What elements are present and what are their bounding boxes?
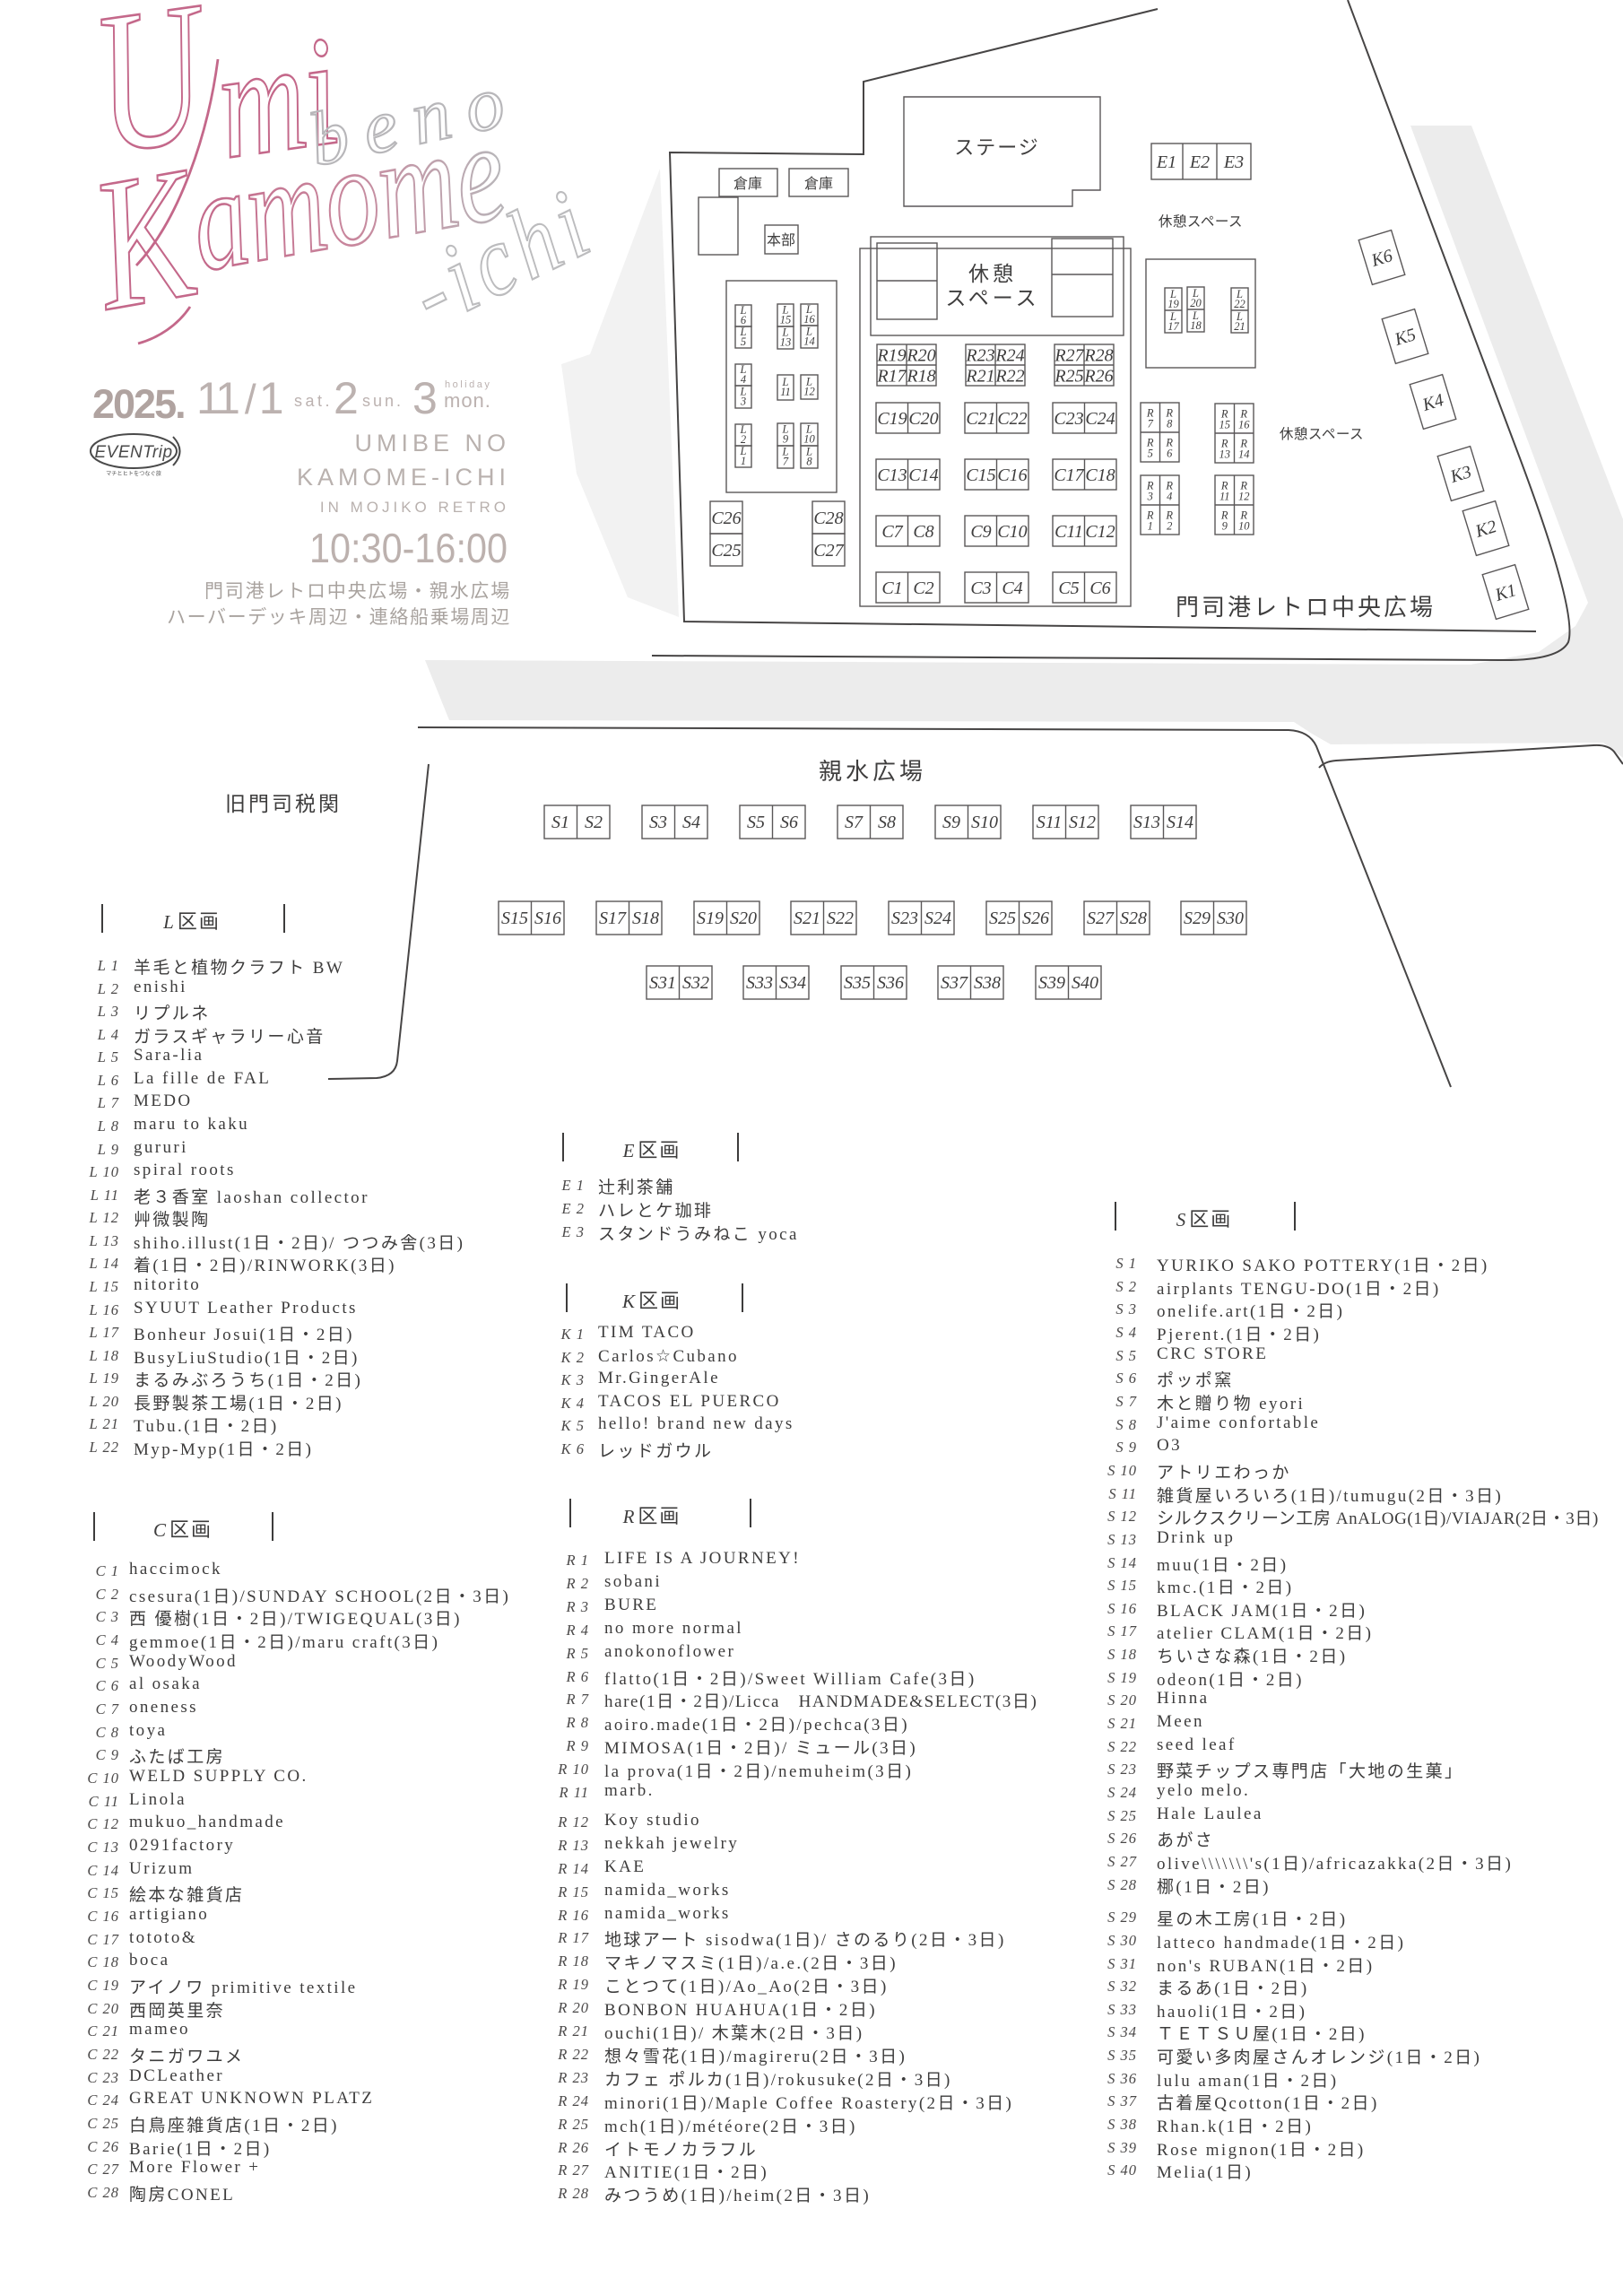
svg-text:14: 14 bbox=[1238, 448, 1250, 461]
svg-text:C28: C28 bbox=[813, 509, 843, 528]
svg-text:C18: C18 bbox=[1085, 465, 1115, 485]
svg-text:R19: R19 bbox=[876, 346, 906, 366]
svg-text:C9: C9 bbox=[970, 522, 991, 542]
svg-text:S7: S7 bbox=[845, 813, 864, 832]
svg-text:10: 10 bbox=[1238, 520, 1250, 533]
svg-text:R25: R25 bbox=[1054, 367, 1083, 387]
svg-text:C15: C15 bbox=[966, 465, 995, 485]
svg-text:8: 8 bbox=[806, 456, 812, 468]
svg-text:C13: C13 bbox=[877, 465, 907, 485]
svg-text:7: 7 bbox=[1148, 418, 1154, 430]
svg-text:K3: K3 bbox=[1447, 462, 1474, 487]
svg-text:2: 2 bbox=[741, 433, 746, 446]
svg-text:1: 1 bbox=[741, 455, 746, 467]
svg-text:C26: C26 bbox=[711, 509, 741, 528]
svg-text:S28: S28 bbox=[1120, 909, 1147, 928]
svg-text:S25: S25 bbox=[989, 909, 1016, 928]
svg-text:K4: K4 bbox=[1419, 390, 1446, 415]
svg-text:R27: R27 bbox=[1054, 346, 1084, 366]
svg-text:休憩スペース: 休憩スペース bbox=[1159, 213, 1243, 230]
svg-text:休憩スペース: 休憩スペース bbox=[1280, 426, 1364, 442]
svg-text:R17: R17 bbox=[876, 367, 907, 387]
svg-text:S9: S9 bbox=[942, 813, 960, 832]
svg-text:S14: S14 bbox=[1167, 813, 1193, 832]
svg-text:13: 13 bbox=[1219, 448, 1231, 461]
svg-text:2: 2 bbox=[1167, 520, 1172, 533]
svg-text:C17: C17 bbox=[1054, 465, 1084, 485]
svg-text:21: 21 bbox=[1234, 320, 1245, 333]
svg-text:S17: S17 bbox=[599, 909, 627, 928]
svg-text:C25: C25 bbox=[711, 541, 741, 561]
svg-text:E3: E3 bbox=[1223, 152, 1244, 172]
svg-text:R18: R18 bbox=[906, 367, 935, 387]
svg-text:C16: C16 bbox=[997, 465, 1027, 485]
svg-text:5: 5 bbox=[741, 335, 746, 348]
svg-text:16: 16 bbox=[803, 313, 815, 326]
svg-text:本部: 本部 bbox=[767, 232, 795, 248]
svg-text:S10: S10 bbox=[971, 813, 998, 832]
svg-text:C12: C12 bbox=[1085, 522, 1115, 542]
svg-text:ステージ: ステージ bbox=[954, 136, 1040, 159]
svg-text:R26: R26 bbox=[1083, 367, 1113, 387]
svg-text:S27: S27 bbox=[1087, 909, 1115, 928]
svg-text:15: 15 bbox=[780, 314, 792, 326]
svg-text:S5: S5 bbox=[747, 813, 765, 832]
svg-text:1: 1 bbox=[1148, 520, 1153, 533]
svg-text:4: 4 bbox=[741, 373, 746, 386]
svg-text:6: 6 bbox=[1167, 448, 1173, 460]
svg-text:10: 10 bbox=[803, 433, 815, 446]
svg-text:9: 9 bbox=[1222, 520, 1228, 533]
svg-text:C19: C19 bbox=[877, 409, 907, 429]
svg-text:C11: C11 bbox=[1055, 522, 1083, 542]
svg-text:13: 13 bbox=[780, 336, 792, 349]
svg-text:C23: C23 bbox=[1054, 409, 1083, 429]
svg-text:R21: R21 bbox=[965, 367, 994, 387]
svg-text:19: 19 bbox=[1167, 298, 1179, 310]
svg-text:C22: C22 bbox=[997, 409, 1027, 429]
svg-text:S8: S8 bbox=[878, 813, 896, 832]
svg-text:S12: S12 bbox=[1069, 813, 1096, 832]
svg-text:親水広場: 親水広場 bbox=[819, 759, 926, 785]
svg-text:C24: C24 bbox=[1085, 409, 1115, 429]
svg-text:R23: R23 bbox=[965, 346, 994, 366]
svg-text:C10: C10 bbox=[997, 522, 1027, 542]
svg-text:7: 7 bbox=[783, 456, 789, 468]
svg-text:S26: S26 bbox=[1022, 909, 1049, 928]
svg-text:12: 12 bbox=[1238, 491, 1250, 503]
svg-text:S2: S2 bbox=[585, 813, 603, 832]
svg-text:S1: S1 bbox=[551, 813, 569, 832]
svg-text:C3: C3 bbox=[970, 578, 991, 598]
svg-text:5: 5 bbox=[1148, 448, 1153, 460]
svg-text:S4: S4 bbox=[682, 813, 700, 832]
svg-text:S11: S11 bbox=[1037, 813, 1063, 832]
svg-text:S18: S18 bbox=[632, 909, 659, 928]
svg-text:9: 9 bbox=[783, 433, 789, 446]
svg-text:休憩: 休憩 bbox=[968, 263, 1017, 285]
svg-text:18: 18 bbox=[1190, 319, 1202, 332]
svg-text:C21: C21 bbox=[966, 409, 995, 429]
svg-text:17: 17 bbox=[1167, 320, 1179, 333]
svg-text:C2: C2 bbox=[913, 578, 933, 598]
svg-text:R20: R20 bbox=[906, 346, 935, 366]
svg-text:R28: R28 bbox=[1083, 346, 1113, 366]
svg-text:14: 14 bbox=[803, 335, 815, 348]
svg-text:倉庫: 倉庫 bbox=[733, 176, 762, 192]
svg-text:S22: S22 bbox=[827, 909, 854, 928]
svg-text:S29: S29 bbox=[1184, 909, 1211, 928]
svg-text:門司港レトロ中央広場: 門司港レトロ中央広場 bbox=[1176, 595, 1436, 621]
svg-text:15: 15 bbox=[1219, 419, 1231, 431]
svg-text:C4: C4 bbox=[1002, 578, 1022, 598]
svg-text:C1: C1 bbox=[881, 578, 902, 598]
svg-text:C20: C20 bbox=[908, 409, 938, 429]
svg-text:20: 20 bbox=[1190, 297, 1202, 309]
svg-text:11: 11 bbox=[780, 386, 791, 398]
svg-text:R22: R22 bbox=[994, 367, 1024, 387]
svg-text:S3: S3 bbox=[649, 813, 667, 832]
svg-text:S13: S13 bbox=[1133, 813, 1160, 832]
svg-text:16: 16 bbox=[1238, 419, 1250, 431]
svg-text:6: 6 bbox=[741, 314, 747, 326]
svg-text:S21: S21 bbox=[794, 909, 820, 928]
svg-text:S15: S15 bbox=[501, 909, 528, 928]
svg-text:S24: S24 bbox=[924, 909, 951, 928]
svg-text:C5: C5 bbox=[1058, 578, 1079, 598]
svg-text:スペース: スペース bbox=[945, 287, 1039, 309]
svg-text:S30: S30 bbox=[1217, 909, 1244, 928]
svg-text:倉庫: 倉庫 bbox=[804, 176, 833, 192]
svg-text:E1: E1 bbox=[1156, 152, 1176, 172]
svg-text:3: 3 bbox=[740, 396, 746, 408]
svg-text:C14: C14 bbox=[908, 465, 938, 485]
svg-text:K5: K5 bbox=[1392, 325, 1419, 350]
svg-text:K1: K1 bbox=[1492, 580, 1519, 605]
svg-text:C6: C6 bbox=[1089, 578, 1110, 598]
svg-text:12: 12 bbox=[803, 386, 815, 398]
svg-text:K6: K6 bbox=[1368, 246, 1395, 271]
svg-text:C27: C27 bbox=[813, 541, 844, 561]
svg-text:S6: S6 bbox=[780, 813, 798, 832]
svg-text:8: 8 bbox=[1167, 418, 1173, 430]
svg-text:C8: C8 bbox=[913, 522, 933, 542]
svg-text:S20: S20 bbox=[730, 909, 757, 928]
svg-text:R24: R24 bbox=[994, 346, 1024, 366]
svg-text:4: 4 bbox=[1167, 491, 1172, 503]
svg-text:K2: K2 bbox=[1472, 517, 1499, 542]
svg-text:S23: S23 bbox=[891, 909, 918, 928]
svg-text:3: 3 bbox=[1147, 491, 1153, 503]
svg-text:11: 11 bbox=[1219, 491, 1230, 503]
svg-text:C7: C7 bbox=[881, 522, 903, 542]
svg-text:E2: E2 bbox=[1189, 152, 1210, 172]
svg-text:S16: S16 bbox=[534, 909, 561, 928]
svg-text:22: 22 bbox=[1234, 298, 1245, 310]
svg-text:S19: S19 bbox=[697, 909, 724, 928]
